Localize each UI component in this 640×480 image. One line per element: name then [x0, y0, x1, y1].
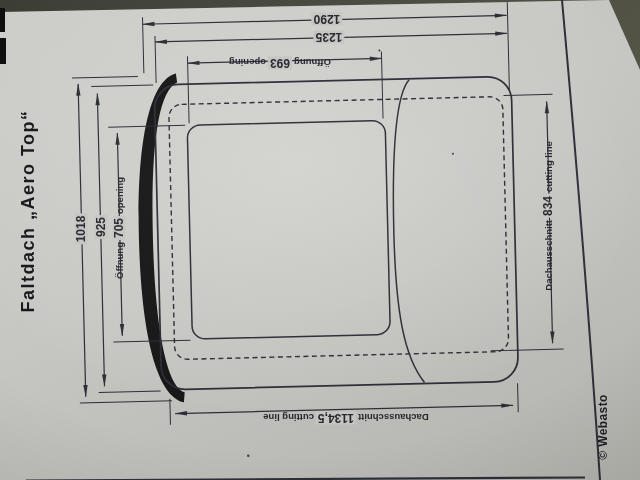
- labels-layer: Faltdach „Aero Top“ 1290 1235 Öffnung693…: [0, 0, 640, 480]
- dim-label-1134: Dachausschnitt1134,5cutting line: [262, 411, 429, 428]
- dim-label-1018: 1018: [72, 213, 89, 246]
- dim-label-925: 925: [92, 214, 109, 240]
- drawing-title: Faltdach „Aero Top“: [19, 109, 38, 312]
- dim-label-705: Öffnung705opening: [110, 176, 127, 280]
- dim-label-834: Dachausschnitt834cutting line: [539, 140, 556, 291]
- dim-label-1290: 1290: [311, 12, 344, 29]
- dim-label-693: Öffnung693opening: [228, 56, 332, 73]
- photo-of-technical-drawing: Faltdach „Aero Top“ 1290 1235 Öffnung693…: [0, 0, 640, 480]
- webasto-credit: © Webasto: [597, 394, 610, 460]
- dim-label-1235: 1235: [313, 30, 346, 47]
